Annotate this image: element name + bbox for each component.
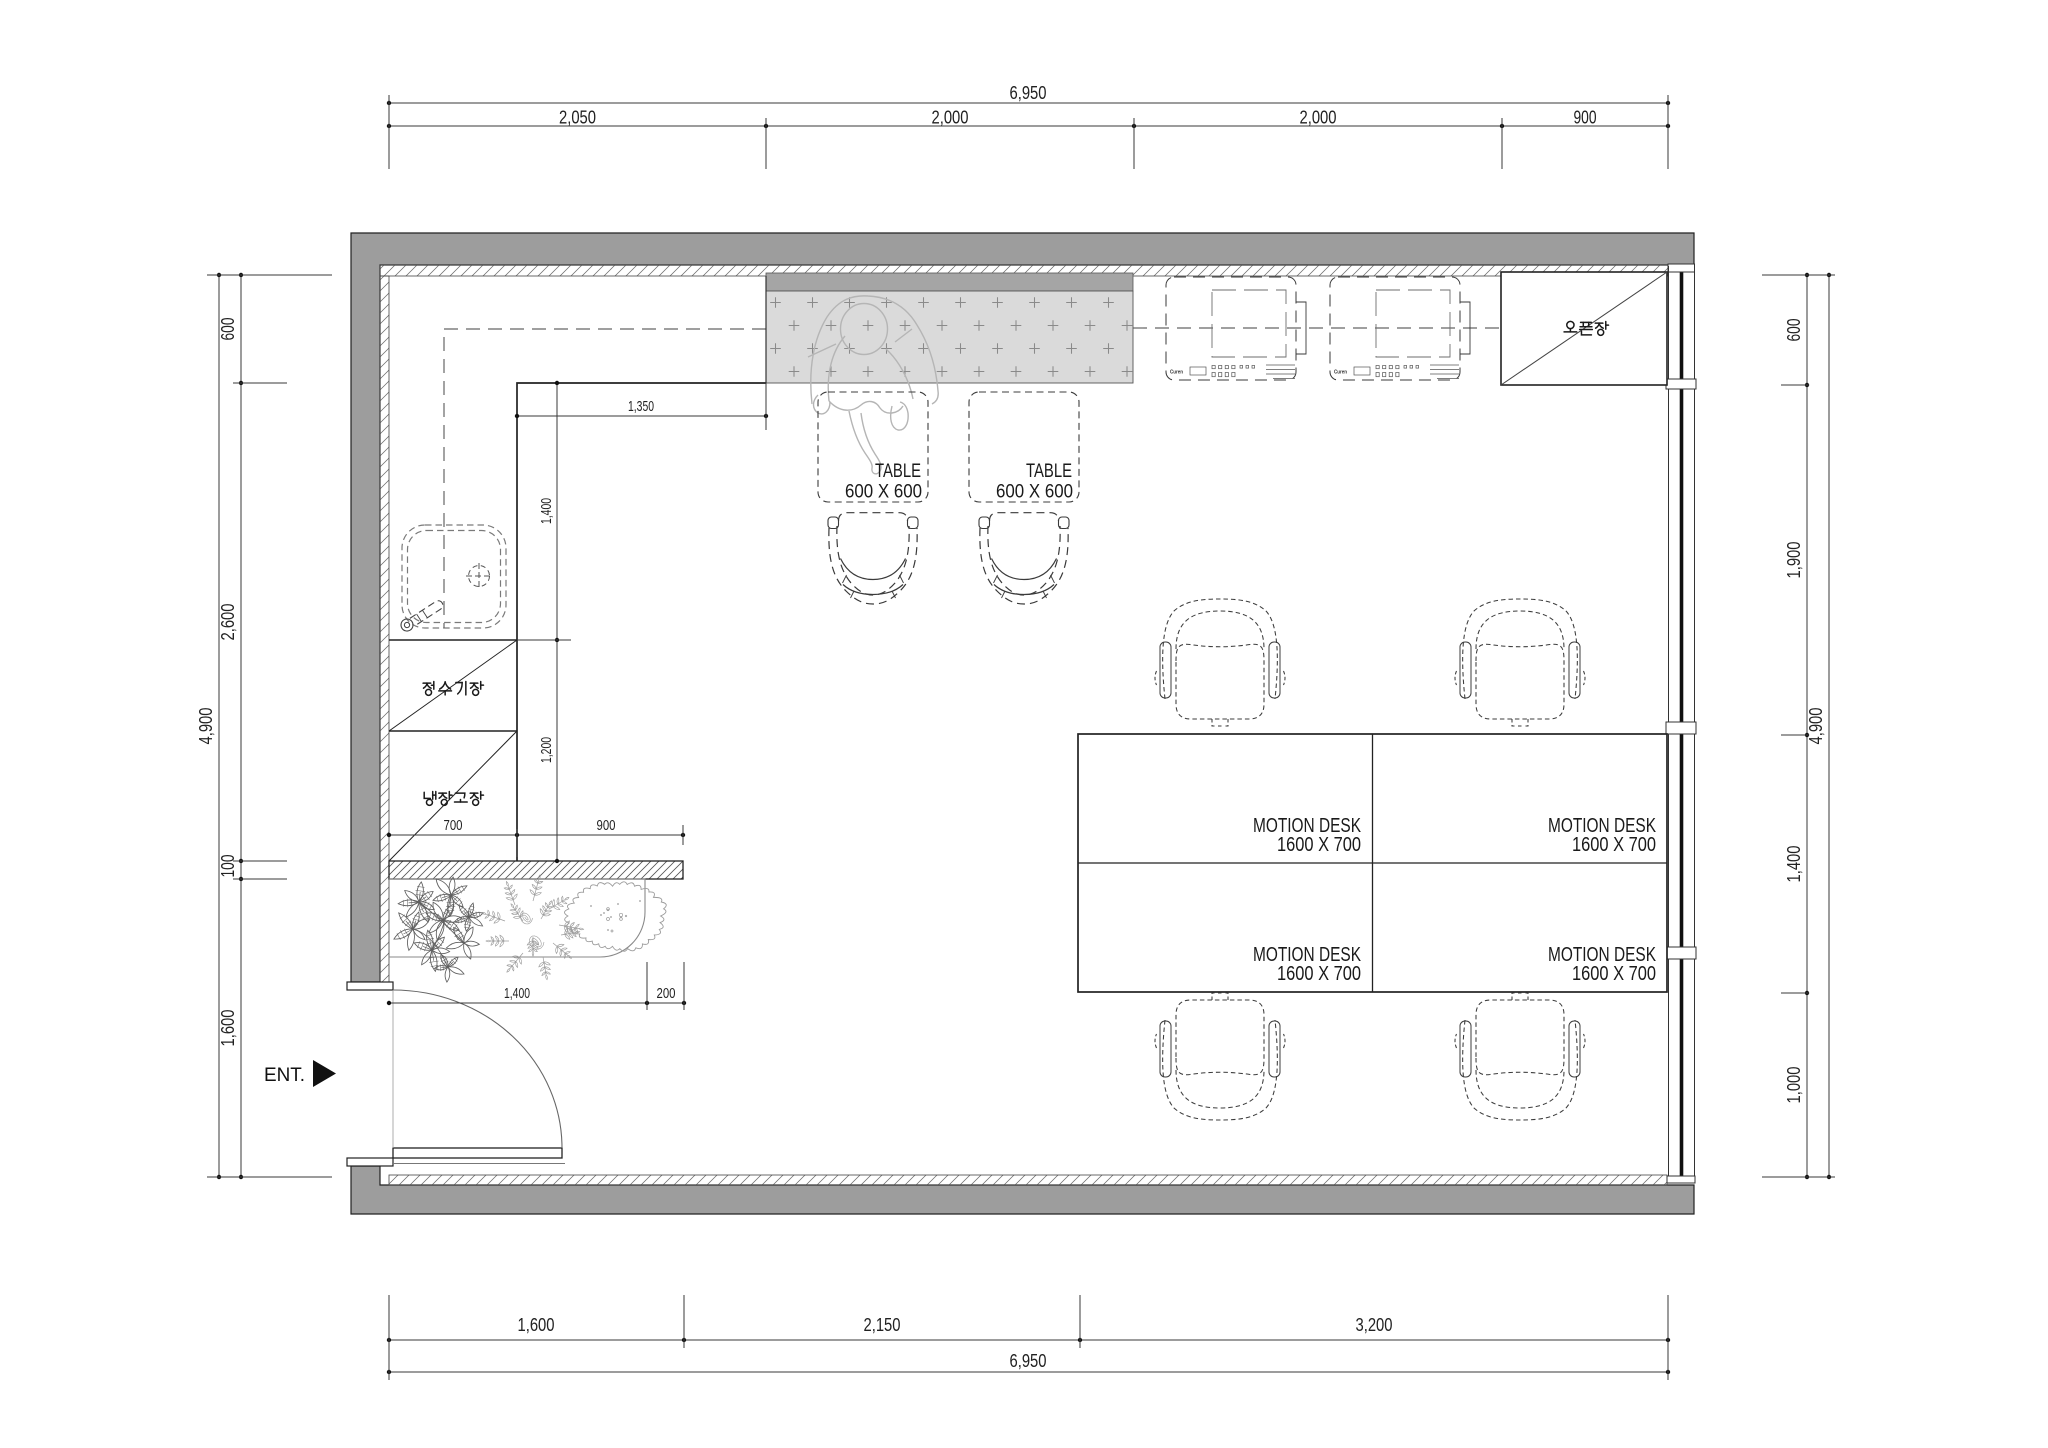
svg-text:4,900: 4,900 (1806, 708, 1826, 745)
svg-text:1,400: 1,400 (504, 986, 530, 1002)
svg-text:600 X 600: 600 X 600 (996, 482, 1073, 503)
svg-text:1,200: 1,200 (539, 737, 555, 763)
svg-text:700: 700 (444, 818, 463, 834)
svg-text:1,600: 1,600 (518, 1315, 555, 1335)
svg-text:900: 900 (597, 818, 616, 834)
svg-text:1600 X 700: 1600 X 700 (1277, 963, 1361, 985)
svg-text:6,950: 6,950 (1010, 83, 1047, 103)
svg-text:900: 900 (1574, 108, 1597, 128)
svg-text:TABLE: TABLE (875, 461, 921, 482)
svg-text:TABLE: TABLE (1026, 461, 1072, 482)
svg-text:600 X 600: 600 X 600 (845, 482, 922, 503)
svg-text:1,400: 1,400 (539, 498, 555, 524)
svg-text:1,600: 1,600 (218, 1010, 238, 1047)
svg-text:600: 600 (1784, 319, 1804, 342)
svg-text:1600 X 700: 1600 X 700 (1572, 963, 1656, 985)
svg-text:2,000: 2,000 (932, 108, 969, 128)
svg-text:2,150: 2,150 (864, 1315, 901, 1335)
svg-text:1,900: 1,900 (1784, 542, 1804, 579)
svg-text:4,900: 4,900 (196, 708, 216, 745)
svg-text:200: 200 (657, 986, 676, 1002)
svg-text:Curen: Curen (1334, 370, 1347, 376)
svg-text:1,400: 1,400 (1784, 846, 1804, 883)
svg-text:1,350: 1,350 (628, 399, 654, 415)
svg-text:2,600: 2,600 (218, 604, 238, 641)
svg-text:2,000: 2,000 (1300, 108, 1337, 128)
svg-text:2,050: 2,050 (559, 108, 596, 128)
svg-text:ENT.: ENT. (264, 1064, 305, 1086)
svg-text:3,200: 3,200 (1356, 1315, 1393, 1335)
svg-text:600: 600 (218, 318, 238, 341)
svg-text:6,950: 6,950 (1010, 1351, 1047, 1371)
svg-text:100: 100 (218, 855, 238, 878)
svg-text:1600 X 700: 1600 X 700 (1277, 834, 1361, 856)
svg-text:Curen: Curen (1170, 370, 1183, 376)
svg-text:1,000: 1,000 (1784, 1067, 1804, 1104)
svg-text:1600 X 700: 1600 X 700 (1572, 834, 1656, 856)
